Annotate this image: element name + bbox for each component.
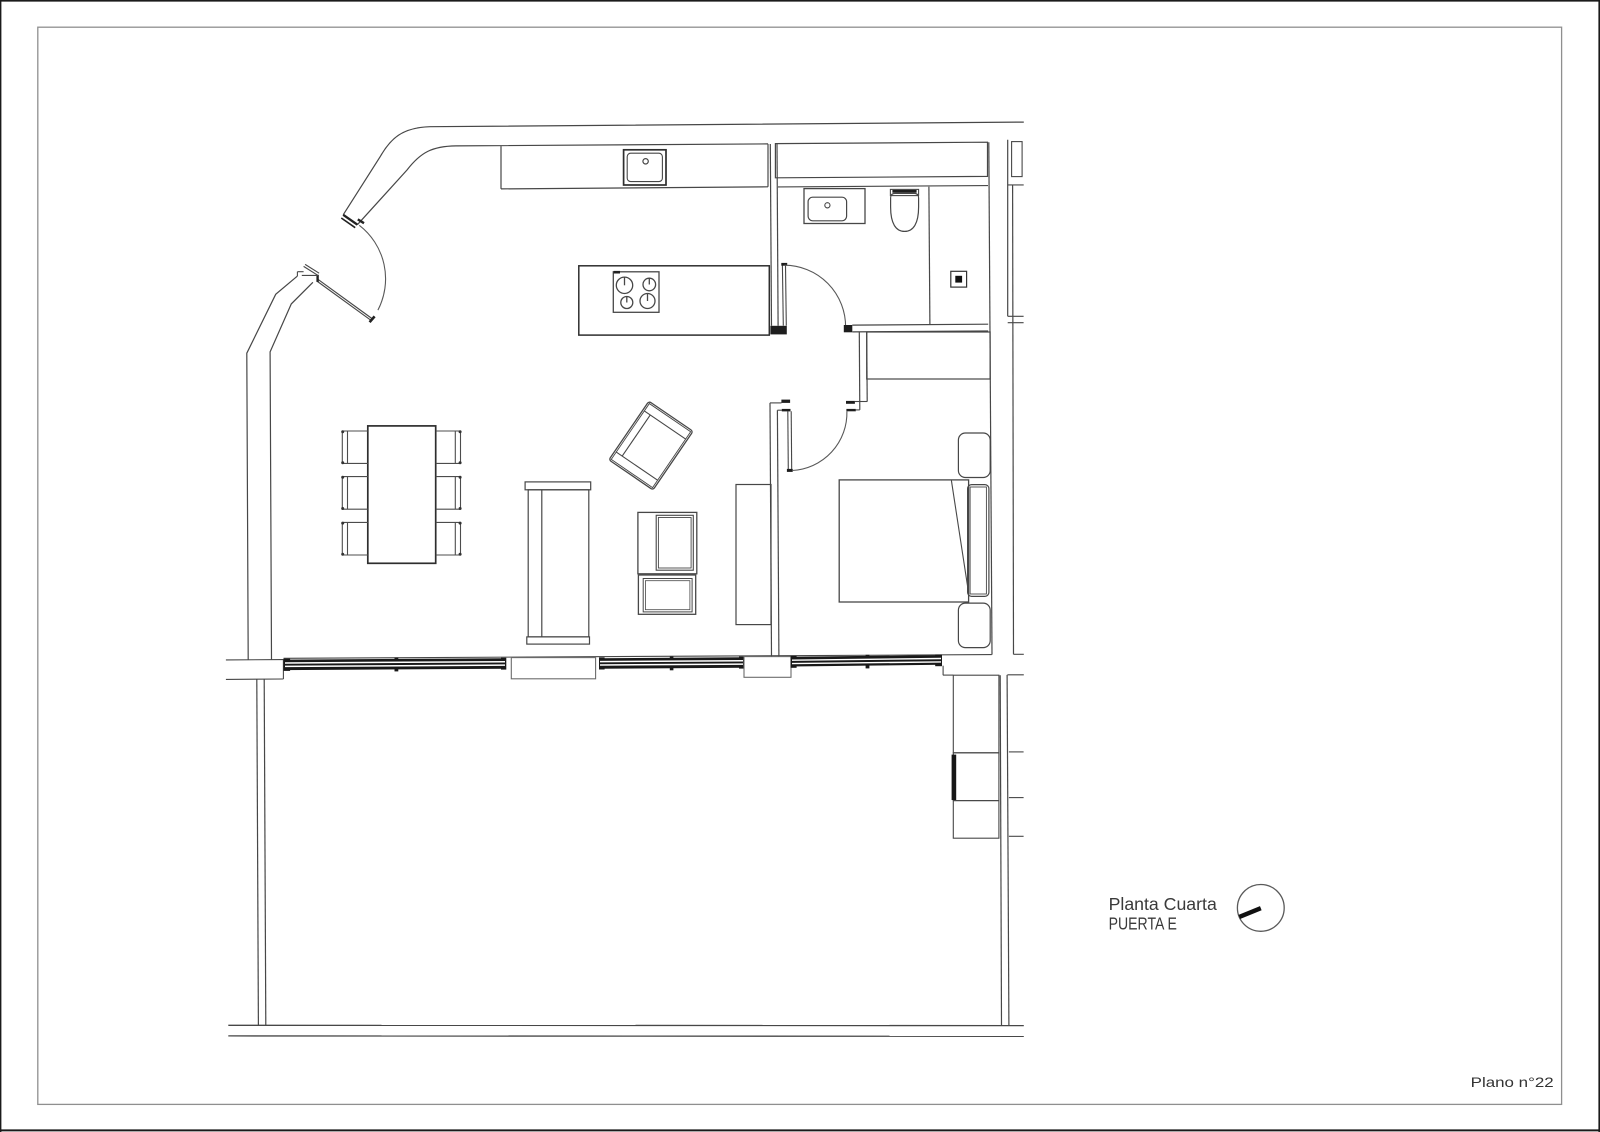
svg-text:Planta Cuarta: Planta Cuarta: [1109, 894, 1218, 914]
svg-text:PUERTA E: PUERTA E: [1109, 913, 1177, 933]
svg-text:Plano n°22: Plano n°22: [1471, 1075, 1554, 1090]
